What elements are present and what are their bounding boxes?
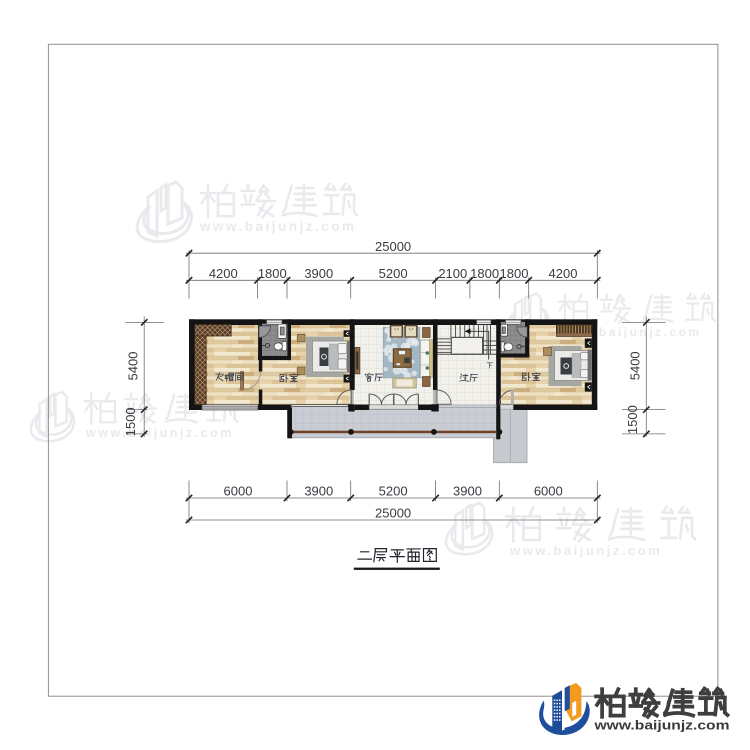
svg-text:6000: 6000 [534, 484, 563, 499]
svg-text:4200: 4200 [209, 266, 238, 281]
svg-text:1500: 1500 [123, 407, 138, 436]
svg-text:3900: 3900 [304, 266, 333, 281]
svg-text:www.baijunjz.com: www.baijunjz.com [509, 543, 662, 558]
svg-text:1800: 1800 [500, 266, 529, 281]
svg-text:5200: 5200 [379, 266, 408, 281]
svg-text:2100: 2100 [438, 266, 467, 281]
svg-text:5400: 5400 [126, 352, 141, 381]
svg-text:4200: 4200 [549, 266, 578, 281]
svg-text:5200: 5200 [379, 484, 408, 499]
svg-text:www.baijunjz.com: www.baijunjz.com [593, 718, 729, 733]
svg-text:1800: 1800 [470, 266, 499, 281]
svg-text:www.baijunjz.com: www.baijunjz.com [85, 426, 234, 440]
svg-text:5400: 5400 [627, 351, 642, 380]
svg-text:3900: 3900 [304, 484, 333, 499]
svg-text:1500: 1500 [625, 405, 640, 434]
svg-text:25000: 25000 [375, 506, 411, 521]
svg-text:www.baijunjz.com: www.baijunjz.com [199, 219, 357, 234]
svg-text:6000: 6000 [224, 484, 253, 499]
svg-text:3900: 3900 [453, 484, 482, 499]
svg-text:25000: 25000 [375, 239, 411, 254]
svg-text:1800: 1800 [258, 266, 287, 281]
